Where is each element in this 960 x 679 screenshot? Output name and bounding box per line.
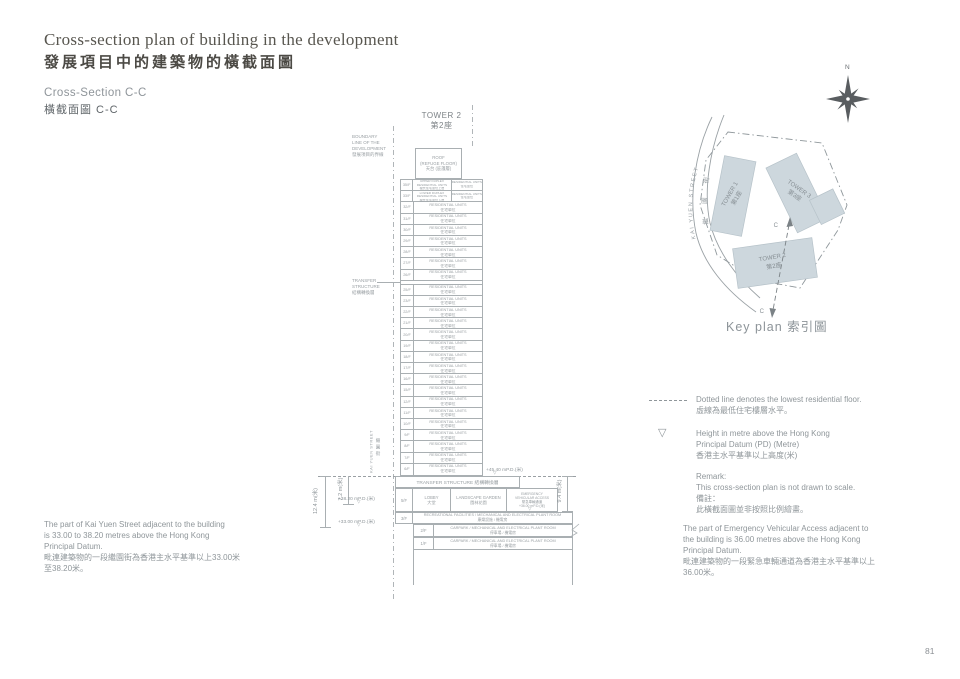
transfer-side-label: TRANSFER STRUCTURE 結構轉換層 bbox=[352, 278, 380, 296]
tower-heading-zh: 第2座 bbox=[400, 121, 483, 131]
datum-triangle-icon: ▽ bbox=[357, 499, 360, 504]
legend-height-en2: Principal Datum (PD) (Metre) bbox=[696, 439, 799, 450]
dim-label-9-4: 9.4 m(米) bbox=[555, 478, 563, 504]
garden-zh: 園林花園 bbox=[470, 500, 487, 505]
dim-tick bbox=[562, 476, 573, 477]
datum-triangle-icon: ▽ bbox=[357, 522, 360, 527]
dim-tick bbox=[320, 527, 331, 528]
street-label-zh: 繼園街 bbox=[375, 438, 381, 458]
remark-en: This cross-section plan is not drawn to … bbox=[696, 482, 855, 493]
roof-box: ROOF (REFUGE FLOOR) 天台 (庇護層) bbox=[415, 148, 462, 179]
floor5-label: 5/F bbox=[396, 489, 413, 511]
lobby-zh: 大堂 bbox=[427, 500, 435, 505]
floor-row-30F: 30/FRESIDENTIAL UNITS住宅單位 bbox=[401, 225, 482, 236]
tower-heading-en: TOWER 2 bbox=[400, 111, 483, 121]
page-title-zh: 發展項目中的建築物的橫截面圖 bbox=[44, 51, 296, 72]
section-title-zh: 橫截面圖 C-C bbox=[44, 101, 119, 117]
floor-row-28F: 28/FRESIDENTIAL UNITS住宅單位 bbox=[401, 247, 482, 258]
dim-tick bbox=[320, 476, 331, 477]
basement-wall-left bbox=[413, 550, 414, 585]
remark-zh-title: 備註： bbox=[696, 493, 720, 504]
floor-row-23F: 23/FRESIDENTIAL UNITS住宅單位 bbox=[401, 296, 482, 307]
floor2-row: 2/F CARPARK / MECHANICAL AND ELECTRICAL … bbox=[413, 524, 573, 537]
floor3-text: RECREATIONAL FACILITIES / MECHANICAL AND… bbox=[413, 513, 572, 523]
floor-row-27F: 27/FRESIDENTIAL UNITS住宅單位 bbox=[401, 258, 482, 269]
dim-line-9-4 bbox=[567, 476, 568, 511]
floor-stack: 35/FUPPER DUPLEXRESIDENTIAL UNITS複式住宅單位上… bbox=[400, 179, 483, 476]
floor-row-9F: 9/FRESIDENTIAL UNITS住宅單位 bbox=[401, 430, 482, 441]
note-right-zh1: 毗連建築物的一段緊急車輛通道為香港主水平基準以上 bbox=[683, 556, 875, 567]
floor-row-7F: 7/FRESIDENTIAL UNITS住宅單位 bbox=[401, 453, 482, 464]
floor-row-8F: 8/FRESIDENTIAL UNITS住宅單位 bbox=[401, 441, 482, 452]
tower1-footprint bbox=[710, 156, 756, 237]
boundary-line-left bbox=[393, 126, 394, 600]
floor5-row: 5/F LOBBY 大堂 LANDSCAPE GARDEN 園林花園 EMERG… bbox=[395, 488, 558, 512]
floor-row-31F: 31/FRESIDENTIAL UNITS住宅單位 bbox=[401, 214, 482, 225]
floor-row-12F: 12/FRESIDENTIAL UNITS住宅單位 bbox=[401, 397, 482, 408]
floor3-label: 3/F bbox=[396, 513, 413, 523]
floor-row-22F: 22/FRESIDENTIAL UNITS住宅單位 bbox=[401, 307, 482, 318]
floor-row-33F: 33/FLOWER DUPLEXRESIDENTIAL UNITS複式住宅單位下… bbox=[401, 191, 482, 202]
floor-row-19F: 19/FRESIDENTIAL UNITS住宅單位 bbox=[401, 341, 482, 352]
floor-row-17F: 17/FRESIDENTIAL UNITS住宅單位 bbox=[401, 363, 482, 374]
note-left-zh2: 至38.20米。 bbox=[44, 563, 88, 574]
floor2-label: 2/F bbox=[414, 525, 434, 536]
legend-height-zh: 香港主水平基準以上高度(米) bbox=[696, 450, 797, 461]
transfer-leader-line bbox=[377, 282, 400, 283]
tower-heading: TOWER 2 第2座 bbox=[400, 111, 483, 131]
note-right-en2: the building is 36.00 metres above the H… bbox=[683, 534, 860, 545]
note-left-en1: The part of Kai Yuen Street adjacent to … bbox=[44, 519, 225, 530]
floor-row-10F: 10/FRESIDENTIAL UNITS住宅單位 bbox=[401, 419, 482, 430]
floor-row-32F: 32/FRESIDENTIAL UNITS住宅單位 bbox=[401, 202, 482, 213]
floor-row-20F: 20/FRESIDENTIAL UNITS住宅單位 bbox=[401, 329, 482, 340]
section-marker-bottom: C bbox=[760, 309, 765, 315]
compass-icon bbox=[826, 75, 870, 123]
remark-zh: 此橫截面圖並非按照比例繪畫。 bbox=[696, 504, 808, 515]
note-left-en3: Principal Datum. bbox=[44, 541, 103, 552]
dashed-line-symbol bbox=[649, 400, 687, 401]
brochure-page: Cross-section plan of building in the de… bbox=[0, 0, 960, 679]
landscape-garden-cell: LANDSCAPE GARDEN 園林花園 bbox=[451, 489, 507, 511]
transfer-side-line: 結構轉換層 bbox=[352, 290, 380, 296]
key-plan: N KAI YUEN STREET 繼 園 街 TOWER 1 第1座 bbox=[660, 55, 890, 345]
floor-row-25F: 25/FRESIDENTIAL UNITS住宅單位 bbox=[401, 285, 482, 296]
eva-cell: EMERGENCY VEHICULAR ACCESS 緊急車輛通道 +36.00… bbox=[507, 489, 557, 511]
keyplan-street-zh: 繼 園 街 bbox=[700, 170, 712, 225]
note-left-zh1: 毗連建築物的一段繼園街為香港主水平基準以上33.00米 bbox=[44, 552, 240, 563]
dim-label-12-4: 12.4 m(米) bbox=[311, 486, 319, 516]
page-number: 81 bbox=[925, 646, 934, 656]
dim-tick bbox=[562, 511, 573, 512]
note-left-en2: is 33.00 to 38.20 metres above the Hong … bbox=[44, 530, 209, 541]
legend-dotted-zh: 虛線為最低住宅樓層水平。 bbox=[696, 405, 792, 416]
floor3-zh: 康樂設施 / 機電房 bbox=[478, 518, 508, 523]
legend-dotted-en: Dotted line denotes the lowest residenti… bbox=[696, 394, 861, 405]
basement-wall-right bbox=[572, 550, 573, 585]
floor-row-15F: 15/FRESIDENTIAL UNITS住宅單位 bbox=[401, 385, 482, 396]
section-title-en: Cross-Section C-C bbox=[44, 87, 147, 99]
datum-triangle-symbol: ▽ bbox=[658, 426, 666, 439]
floor1-text: CARPARK / MECHANICAL AND ELECTRICAL PLAN… bbox=[434, 538, 572, 549]
floor1-row: 1/F CARPARK / MECHANICAL AND ELECTRICAL … bbox=[413, 537, 573, 550]
note-right-en3: Principal Datum. bbox=[683, 545, 742, 556]
section-arrow-bottom bbox=[770, 308, 777, 318]
break-zigzag-icon bbox=[569, 523, 581, 538]
floor-row-26F: 26/FRESIDENTIAL UNITS住宅單位 bbox=[401, 270, 482, 281]
street-label-en: KAI YUEN STREET bbox=[369, 423, 374, 481]
boundary-label-line: 發展項目的界線 bbox=[352, 152, 386, 158]
floor-row-18F: 18/FRESIDENTIAL UNITS住宅單位 bbox=[401, 352, 482, 363]
section-marker-top: C bbox=[774, 223, 779, 229]
dim-line-12-4 bbox=[325, 476, 326, 527]
floor-row-16F: 16/FRESIDENTIAL UNITS住宅單位 bbox=[401, 374, 482, 385]
floor-row-6F: 6/FRESIDENTIAL UNITS住宅單位 bbox=[401, 464, 482, 475]
legend-height-en1: Height in metre above the Hong Kong bbox=[696, 428, 830, 439]
transfer-structure-band: TRANSFER STRUCTURE 結構轉換層 bbox=[395, 476, 520, 488]
floor-row-29F: 29/FRESIDENTIAL UNITS住宅單位 bbox=[401, 236, 482, 247]
floor1-label: 1/F bbox=[414, 538, 434, 549]
floor2-text: CARPARK / MECHANICAL AND ELECTRICAL PLAN… bbox=[434, 525, 572, 536]
boundary-label: BOUNDARY LINE OF THE DEVELOPMENT 發展項目的界線 bbox=[352, 134, 386, 158]
datum-triangle-icon: ▽ bbox=[528, 506, 531, 511]
compass-n-label: N bbox=[845, 64, 850, 71]
roof-line: 天台 (庇護層) bbox=[426, 166, 452, 172]
eva-level: +36.00 mP.D.(米) bbox=[519, 504, 545, 508]
boundary-line-right bbox=[472, 105, 473, 149]
floor-row-21F: 21/FRESIDENTIAL UNITS住宅單位 bbox=[401, 318, 482, 329]
floor-row-11F: 11/FRESIDENTIAL UNITS住宅單位 bbox=[401, 408, 482, 419]
floor2-zh: 停車場 / 機電房 bbox=[490, 531, 516, 536]
floor3-row: 3/F RECREATIONAL FACILITIES / MECHANICAL… bbox=[395, 512, 573, 524]
datum-triangle-icon: ▽ bbox=[493, 470, 496, 475]
floor-row-35F: 35/FUPPER DUPLEXRESIDENTIAL UNITS複式住宅單位上… bbox=[401, 180, 482, 191]
keyplan-street-en: KAI YUEN STREET bbox=[688, 166, 700, 240]
note-right-zh2: 36.00米。 bbox=[683, 567, 719, 578]
keyplan-caption: Key plan 索引圖 bbox=[726, 320, 828, 334]
remark-title: Remark: bbox=[696, 471, 726, 482]
lobby-cell: LOBBY 大堂 bbox=[413, 489, 451, 511]
note-right-en1: The part of Emergency Vehicular Access a… bbox=[683, 523, 868, 534]
dim-tick bbox=[343, 504, 354, 505]
floor1-zh: 停車場 / 機電房 bbox=[490, 544, 516, 549]
level-lowest-res: +45.40 mP.D.(米) bbox=[486, 466, 523, 473]
page-title-en: Cross-section plan of building in the de… bbox=[44, 30, 399, 50]
